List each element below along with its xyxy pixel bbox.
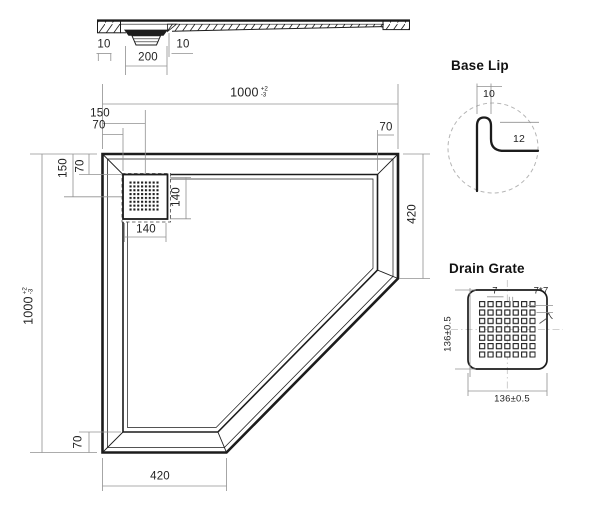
drain-grate-title: Drain Grate (449, 261, 525, 276)
grate-dim-hole-size: 7*7 (534, 286, 549, 296)
section-view (97, 21, 410, 45)
drain-grate-dots (130, 182, 160, 212)
section-right-wall (383, 21, 410, 30)
shower-tray-technical-drawing: 10 200 10 1000 +2 -3 1000 +2 -3 150 70 7… (0, 0, 602, 526)
base-lip-dim-height: 12 (513, 134, 525, 145)
plan-dim-rim-left: 70 (75, 159, 87, 172)
base-lip-dim-width: 10 (483, 89, 495, 100)
grate-hole-grid (479, 301, 536, 358)
plan-dim-drain-center-x: 150 (90, 108, 110, 120)
plan-dim-width-tolerance: +2 -3 (261, 87, 268, 100)
grate-dim-hole-pitch: 7 (492, 286, 497, 296)
plan-dim-right-edge: 420 (407, 204, 419, 224)
section-dim-left-lip: 10 (97, 39, 110, 51)
plan-dim-drain-cutout-height: 140 (171, 187, 183, 207)
plan-dim-height-value: 1000 (23, 296, 36, 325)
tolerance-minus: -3 (29, 287, 35, 294)
plan-dim-rim-top-left: 70 (92, 120, 105, 132)
plan-dim-width: 1000 +2 -3 (230, 87, 268, 100)
section-dim-right-lip: 10 (176, 39, 189, 51)
lip-profile (477, 118, 538, 192)
plan-dim-width-value: 1000 (230, 87, 259, 100)
plan-dim-bottom-edge: 420 (150, 471, 170, 483)
plan-dim-drain-cutout-width: 140 (136, 224, 156, 236)
hole-callout-leader (540, 319, 547, 324)
drain-grate-detail (451, 280, 563, 396)
plan-view (103, 154, 399, 453)
grate-dim-width: 136±0.5 (494, 394, 530, 404)
section-drain-flange (124, 30, 168, 36)
plan-dim-height: 1000 +2 -3 (23, 287, 36, 325)
plan-dimension-lines (30, 84, 430, 491)
plan-dim-drain-center-y: 150 (58, 158, 70, 178)
plan-dim-rim-bottom: 70 (73, 435, 85, 448)
section-left-wall (98, 21, 121, 33)
base-lip-title: Base Lip (451, 58, 509, 73)
section-drain-body (132, 36, 161, 45)
section-dim-drain-width: 200 (138, 52, 158, 64)
base-lip-detail (448, 84, 539, 194)
plan-dim-rim-top-right: 70 (379, 122, 392, 134)
grate-dim-height: 136±0.5 (443, 316, 453, 352)
plan-dim-height-tolerance: +2 -3 (23, 287, 36, 294)
tolerance-minus: -3 (261, 93, 268, 99)
